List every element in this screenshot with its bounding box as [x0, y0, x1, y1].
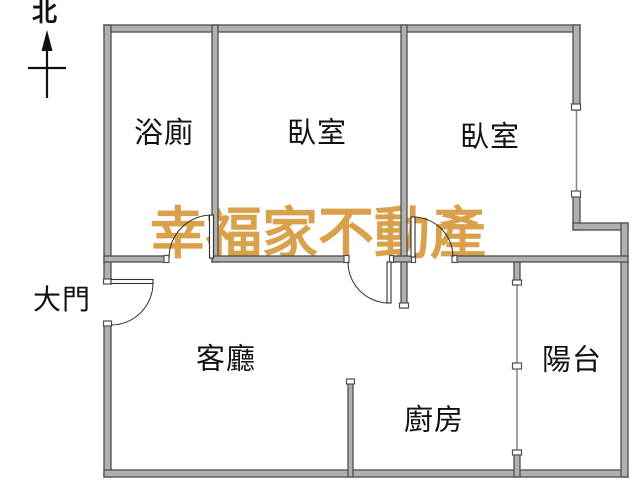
wall-left-lower: [104, 325, 111, 477]
wall-horizontal-d: [453, 256, 628, 262]
wall-horizontal-b: [212, 256, 348, 262]
balcony-cap-bottom: [513, 450, 522, 455]
bath-doorway-cap: [164, 256, 169, 263]
wall-balcony-stub-bottom: [514, 452, 520, 477]
bathroom-door-panel: [210, 215, 214, 258]
room-label-bedroom-1: 臥室: [287, 120, 347, 149]
bedroom1-door-arc: [348, 262, 389, 303]
wall-bedroom1-bedroom2: [401, 25, 407, 308]
balcony-cap-mid: [513, 363, 522, 369]
center-wall-end-cap: [400, 303, 409, 308]
window-cap-bottom: [572, 191, 581, 197]
main-door-cap-top: [104, 279, 112, 284]
room-label-bedroom-2: 臥室: [460, 124, 520, 153]
room-label-balcony: 陽台: [542, 347, 602, 376]
main-door-cap-bottom: [104, 321, 112, 326]
floor-plan-page: 北 幸福家不動產: [0, 0, 640, 480]
bedroom1-doorway-cap-left: [344, 256, 349, 263]
wall-right-upper: [573, 25, 580, 110]
room-label-bathroom: 浴廁: [134, 120, 194, 149]
bedroom2-door-arc: [413, 217, 453, 257]
wall-left-upper: [104, 25, 111, 283]
wall-horizontal-a: [104, 256, 168, 262]
room-label-living-room: 客廳: [196, 346, 256, 375]
bathroom-door-arc: [169, 215, 212, 258]
floor-plan-drawing: [0, 0, 640, 480]
wall-bottom: [104, 470, 628, 477]
bedroom2-door-panel: [411, 217, 415, 257]
wall-step-top: [573, 223, 628, 230]
entrance-label: 大門: [33, 286, 91, 314]
wall-kitchen-divider: [348, 382, 353, 477]
room-label-kitchen: 廚房: [404, 407, 464, 436]
compass: 北: [0, 0, 90, 115]
north-label: 北: [32, 1, 57, 26]
window-cap-top: [572, 104, 581, 110]
wall-top: [104, 25, 580, 32]
main-door-arc: [111, 283, 153, 325]
main-door-panel: [111, 280, 153, 284]
kitchen-wall-end-cap: [347, 379, 355, 384]
bedroom1-door-panel: [387, 262, 391, 303]
balcony-cap-top: [513, 280, 522, 285]
